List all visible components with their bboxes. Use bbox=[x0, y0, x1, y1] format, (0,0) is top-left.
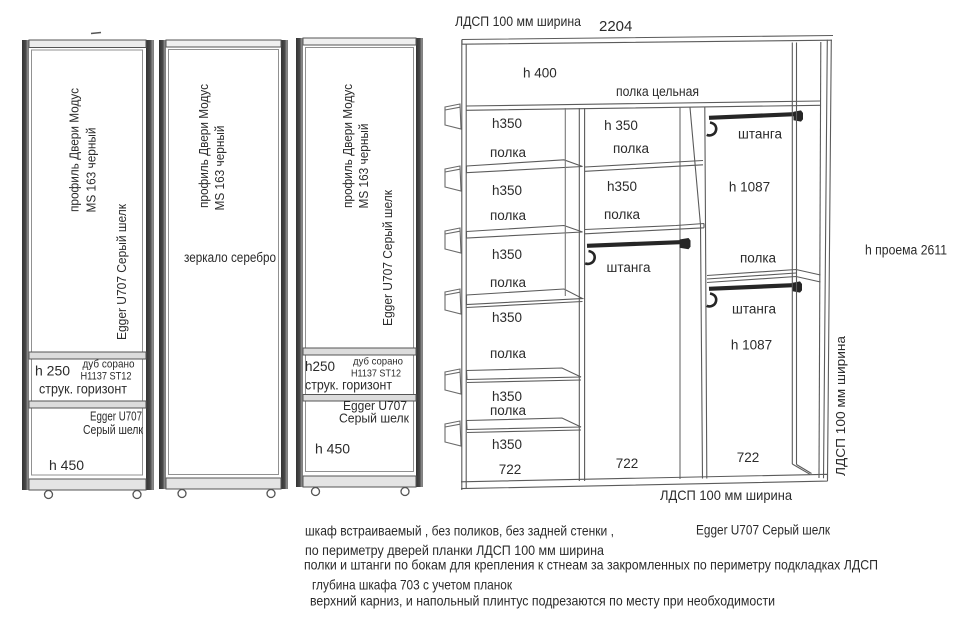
svg-text:полка: полка bbox=[490, 346, 527, 361]
svg-text:722: 722 bbox=[499, 462, 522, 477]
svg-text:полка: полка bbox=[490, 208, 527, 223]
svg-text:Egger U707 Серый шелк: Egger U707 Серый шелк bbox=[380, 190, 395, 326]
svg-text:2204: 2204 bbox=[599, 18, 632, 35]
svg-text:h 1087: h 1087 bbox=[729, 180, 770, 195]
svg-text:h 350: h 350 bbox=[604, 118, 638, 133]
svg-text:полки и штанги по бокам для кр: полки и штанги по бокам для крепления к … bbox=[304, 558, 878, 573]
svg-text:струк. горизонт: струк. горизонт bbox=[39, 382, 128, 397]
svg-text:h350: h350 bbox=[492, 116, 522, 131]
svg-text:дуб сорано: дуб сорано bbox=[353, 356, 403, 368]
svg-text:ЛДСП 100 мм ширина: ЛДСП 100 мм ширина bbox=[660, 487, 792, 503]
svg-text:верхний карниз, и напольный пл: верхний карниз, и напольный плинтус подр… bbox=[310, 594, 775, 609]
svg-text:штанга: штанга bbox=[732, 302, 776, 317]
svg-text:h 450: h 450 bbox=[49, 457, 84, 473]
svg-text:профиль Двери Модус: профиль Двери Модус bbox=[340, 84, 355, 208]
svg-text:h350: h350 bbox=[492, 247, 522, 262]
svg-text:722: 722 bbox=[737, 450, 760, 465]
svg-text:ЛДСП 100 мм ширина: ЛДСП 100 мм ширина bbox=[455, 13, 581, 29]
svg-text:полка цельная: полка цельная bbox=[616, 84, 699, 99]
svg-text:полка: полка bbox=[490, 403, 527, 418]
svg-text:h350: h350 bbox=[492, 310, 522, 325]
svg-text:h350: h350 bbox=[492, 389, 522, 404]
svg-text:h350: h350 bbox=[492, 183, 522, 198]
svg-text:шкаф встраиваемый , без полико: шкаф встраиваемый , без поликов, без зад… bbox=[305, 524, 614, 539]
svg-text:глубина шкафа 703 с учетом пла: глубина шкафа 703 с учетом планок bbox=[312, 578, 513, 593]
svg-text:дуб сорано: дуб сорано bbox=[83, 359, 135, 371]
svg-text:Серый шелк: Серый шелк bbox=[83, 422, 143, 437]
svg-text:струк. горизонт: струк. горизонт bbox=[305, 378, 392, 393]
svg-text:h250: h250 bbox=[305, 359, 335, 374]
svg-text:полка: полка bbox=[740, 251, 777, 266]
svg-text:h 1087: h 1087 bbox=[731, 338, 772, 353]
svg-text:h 450: h 450 bbox=[315, 441, 350, 457]
svg-text:штанга: штанга bbox=[738, 127, 782, 142]
svg-text:MS 163 черный: MS 163 черный bbox=[84, 128, 99, 213]
svg-text:полка: полка bbox=[604, 207, 641, 222]
svg-text:полка: полка bbox=[613, 141, 650, 156]
svg-text:722: 722 bbox=[616, 456, 639, 471]
svg-text:полка: полка bbox=[490, 145, 527, 160]
svg-text:ЛДСП 100 мм ширина: ЛДСП 100 мм ширина bbox=[834, 336, 848, 476]
svg-text:по периметру дверей планки ЛДС: по периметру дверей планки ЛДСП 100 мм ш… bbox=[305, 543, 604, 558]
svg-text:зеркало серебро: зеркало серебро bbox=[184, 250, 276, 265]
svg-text:h350: h350 bbox=[607, 179, 637, 194]
svg-text:Egger U707 Серый шелк: Egger U707 Серый шелк bbox=[114, 204, 129, 340]
svg-text:профиль Двери Модус: профиль Двери Модус bbox=[196, 84, 211, 208]
svg-text:h проема 2611: h проема 2611 bbox=[865, 243, 947, 258]
svg-text:h 250: h 250 bbox=[35, 363, 70, 379]
svg-text:штанга: штанга bbox=[607, 260, 651, 275]
svg-text:полка: полка bbox=[490, 275, 527, 290]
svg-text:Серый шелк: Серый шелк bbox=[339, 411, 409, 426]
svg-text:профиль Двери Модус: профиль Двери Модус bbox=[67, 88, 82, 212]
svg-text:Egger U707 Серый шелк: Egger U707 Серый шелк bbox=[696, 523, 830, 538]
svg-text:h 400: h 400 bbox=[523, 66, 557, 81]
svg-text:h350: h350 bbox=[492, 437, 522, 452]
svg-text:MS 163 черный: MS 163 черный bbox=[356, 124, 371, 209]
svg-text:MS 163 черный: MS 163 черный bbox=[212, 126, 227, 211]
